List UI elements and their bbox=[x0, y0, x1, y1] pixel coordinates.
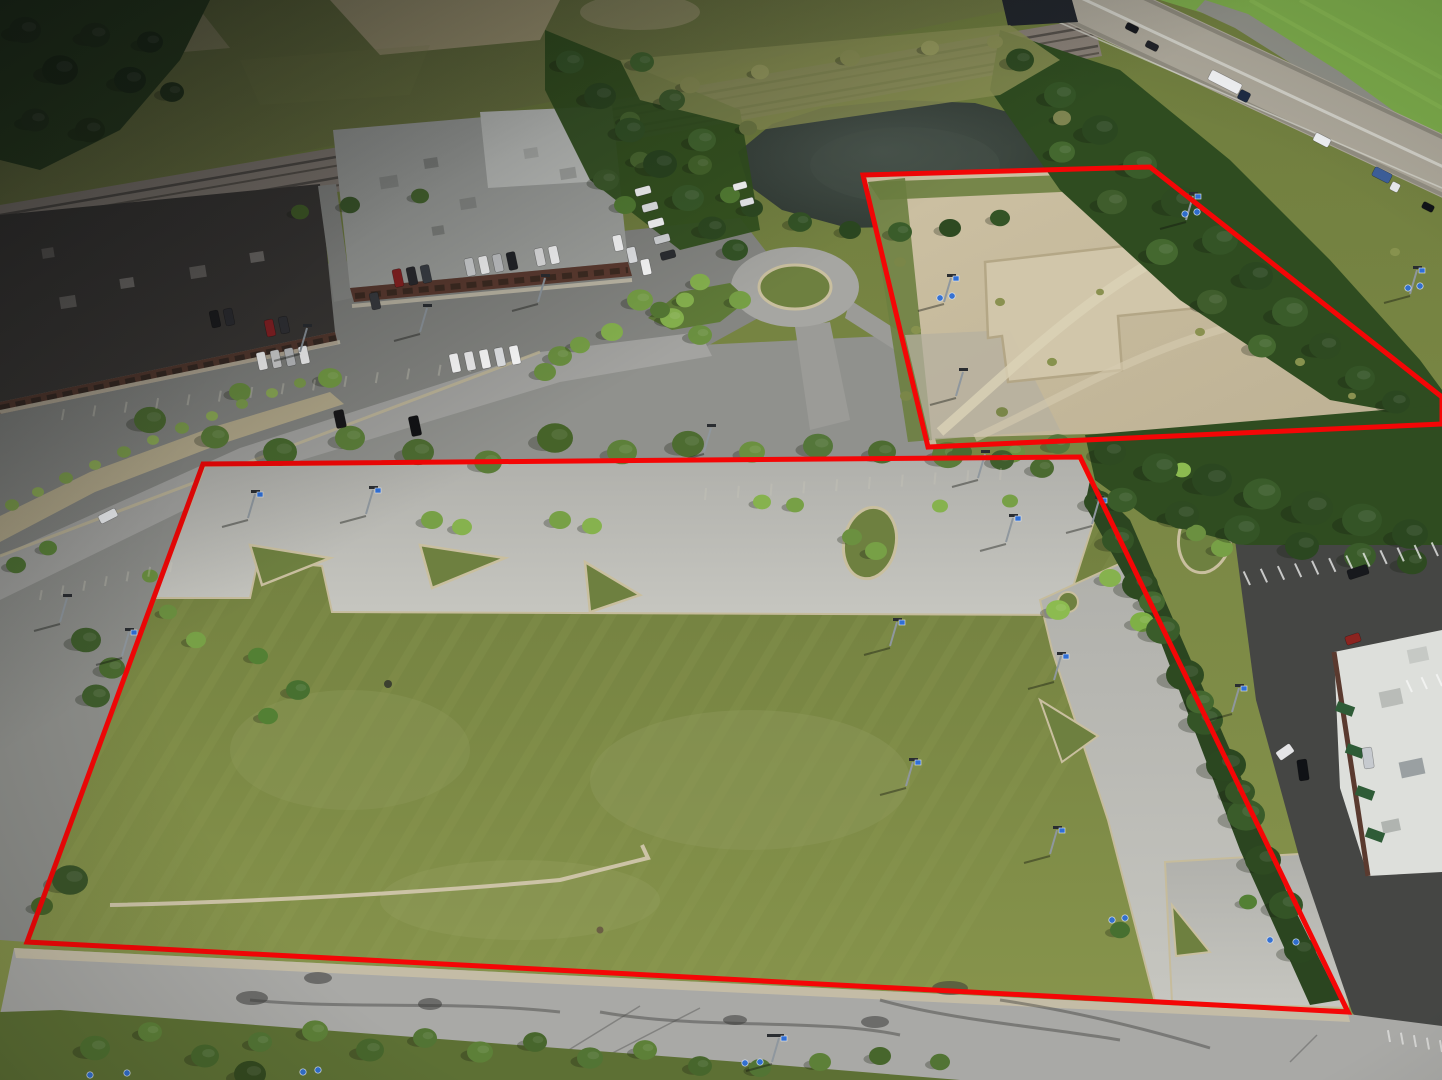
aerial-photo bbox=[0, 0, 1442, 1080]
aerial-photo-canvas bbox=[0, 0, 1442, 1080]
vignette-edges bbox=[0, 0, 1442, 1080]
